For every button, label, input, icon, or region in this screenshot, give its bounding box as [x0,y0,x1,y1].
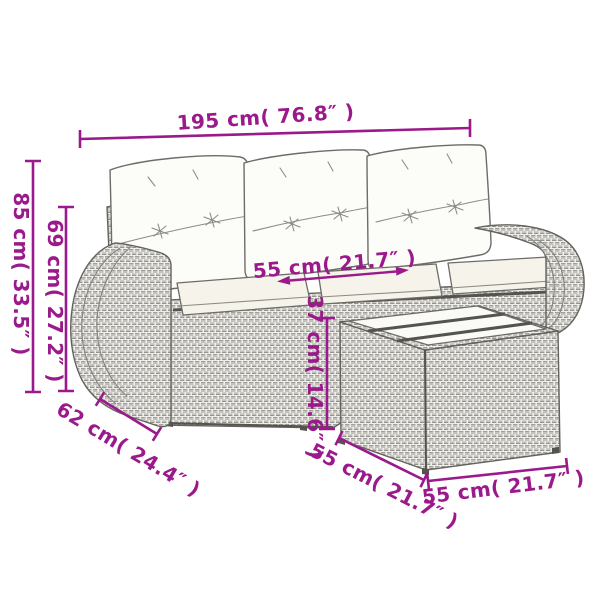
dimension-label-sofa-width: 195 cm( 76.8″ ) [176,99,355,135]
dimension-label-sofa-height: 85 cm( 33.5″ ) [9,192,33,356]
dimension-label-backrest-height: 69 cm( 27.2″ ) [43,219,67,383]
side-table [338,306,560,475]
dimension-label-seat-height: 37 cm( 14.6″ ) [303,295,327,459]
dimension-backrest-height: 69 cm( 27.2″ ) [43,207,74,391]
seat-cushion-right [448,257,553,294]
dimension-diagram-page: 195 cm( 76.8″ ) 85 cm( 33.5″ ) 69 cm( 27… [0,0,600,600]
dimension-sofa-width: 195 cm( 76.8″ ) [80,99,470,148]
garden-sofa-dimension-diagram: 195 cm( 76.8″ ) 85 cm( 33.5″ ) 69 cm( 27… [0,0,600,600]
dimension-sofa-height: 85 cm( 33.5″ ) [9,161,41,392]
table-right-face [425,331,560,470]
left-armrest [71,243,171,427]
